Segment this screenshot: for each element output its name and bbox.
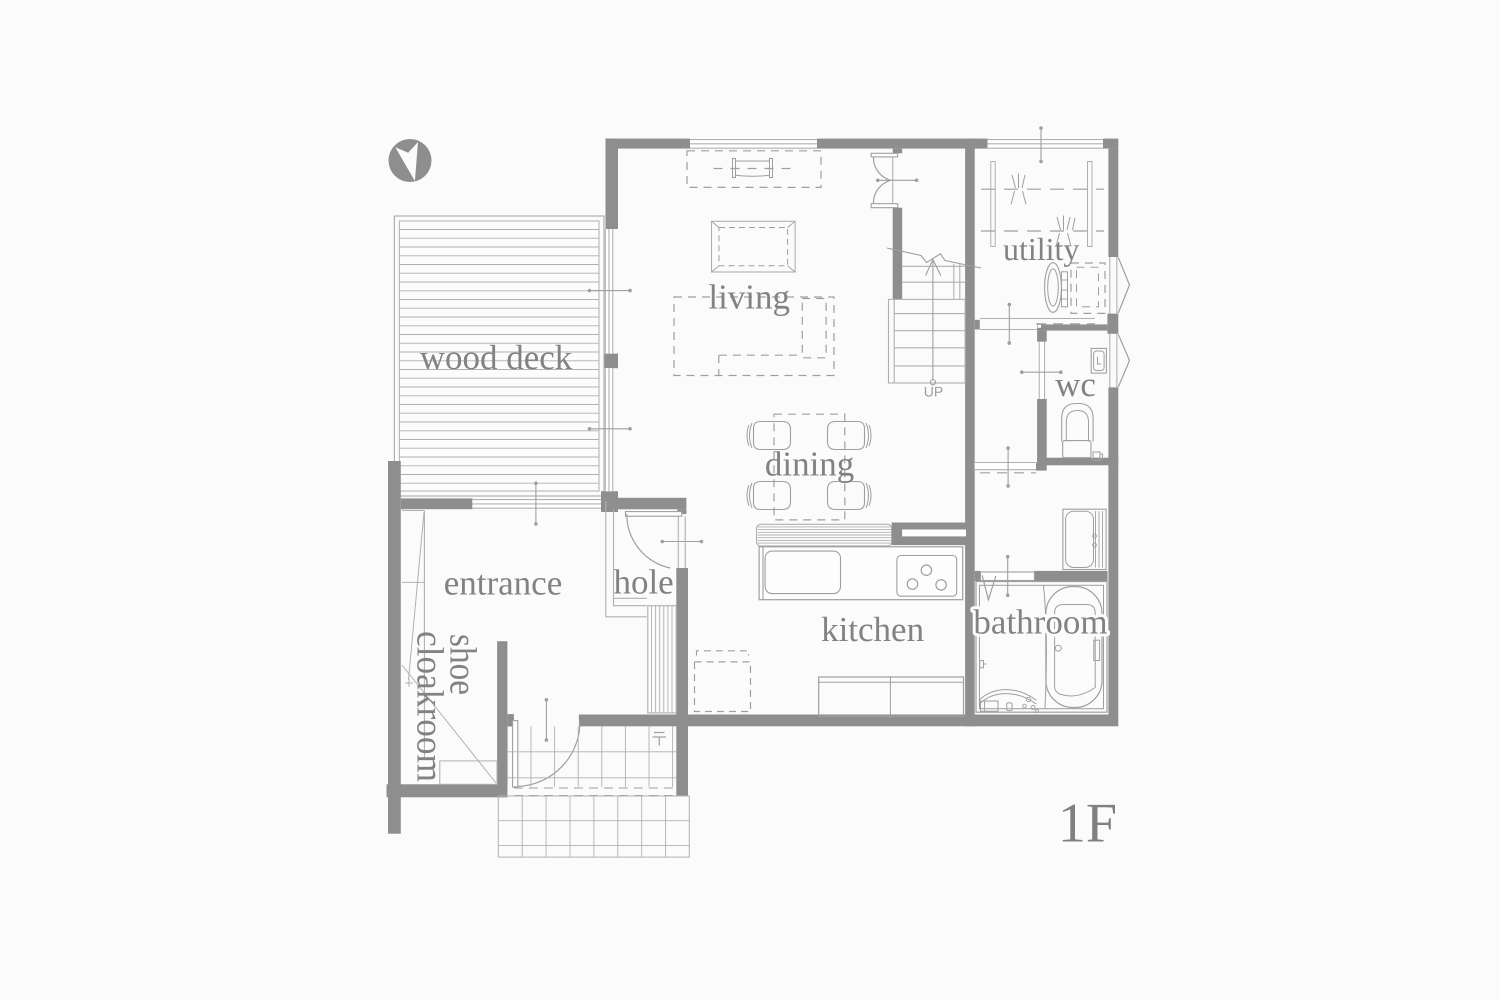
svg-text:entrance: entrance [444, 564, 563, 603]
svg-text:dining: dining [765, 444, 854, 483]
svg-text:UP: UP [924, 384, 943, 400]
svg-text:wc: wc [1055, 365, 1096, 404]
svg-text:hole: hole [613, 563, 673, 602]
svg-text:utility: utility [1003, 231, 1079, 267]
svg-text:kitchen: kitchen [821, 610, 924, 649]
svg-text:wood deck: wood deck [420, 338, 573, 377]
svg-text:1F: 1F [1058, 793, 1117, 855]
svg-text:cloakroom: cloakroom [409, 631, 451, 782]
svg-text:living: living [708, 278, 790, 317]
svg-text:bathroom: bathroom [973, 603, 1107, 642]
